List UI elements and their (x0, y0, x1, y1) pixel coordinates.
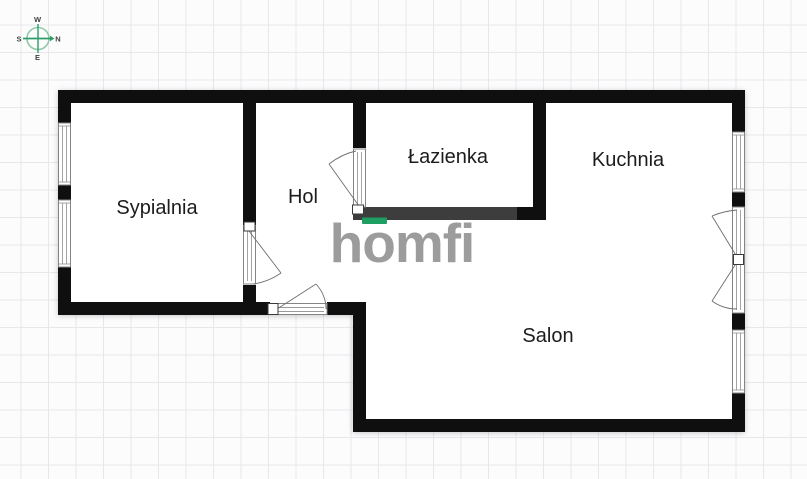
window-bedroom-upper (59, 123, 71, 185)
window-bedroom-lower (59, 200, 71, 267)
room-label-sypialnia: Sypialnia (116, 197, 198, 219)
compass-letter-right: N (55, 35, 60, 44)
room-label-hol: Hol (288, 186, 318, 208)
room-label-kuchnia: Kuchnia (592, 149, 665, 171)
wall-bedroom-right-bottom (243, 285, 256, 315)
wall-bathroom-right (533, 90, 546, 220)
wall-right-seg2 (732, 313, 745, 330)
window-kitchen (733, 132, 745, 192)
floor-plan: homfi Sypialnia Hol Łazienka Kuchnia Sal… (0, 0, 807, 479)
balcony-door-hinge (734, 255, 744, 265)
entrance-door-hinge (268, 304, 278, 315)
wall-right-seg1 (732, 192, 745, 207)
compass-icon: W N E S (16, 15, 60, 62)
wall-salon-left (353, 302, 366, 432)
bedroom-door-hinge (244, 222, 255, 231)
compass-letter-bottom: E (35, 53, 40, 62)
wall-salon-bottom (353, 419, 745, 432)
window-salon (733, 330, 745, 393)
wall-left-mid (58, 185, 71, 200)
wall-bottom-left-a (58, 302, 270, 315)
compass-letter-top: W (34, 15, 42, 24)
wall-right-bottom (732, 393, 745, 432)
compass-north-arrow (50, 36, 55, 41)
room-label-salon: Salon (522, 325, 573, 347)
compass-letter-left: S (16, 35, 21, 44)
floorplan-canvas: homfi Sypialnia Hol Łazienka Kuchnia Sal… (0, 0, 807, 479)
wall-left-top (58, 90, 71, 123)
watermark-text: homfi (330, 212, 475, 274)
wall-bedroom-right-top (243, 90, 256, 225)
watermark: homfi (330, 212, 475, 274)
wall-top (58, 90, 745, 103)
wall-right-top (732, 90, 745, 132)
wall-bathroom-left (353, 90, 366, 148)
room-label-lazienka: Łazienka (408, 146, 489, 168)
